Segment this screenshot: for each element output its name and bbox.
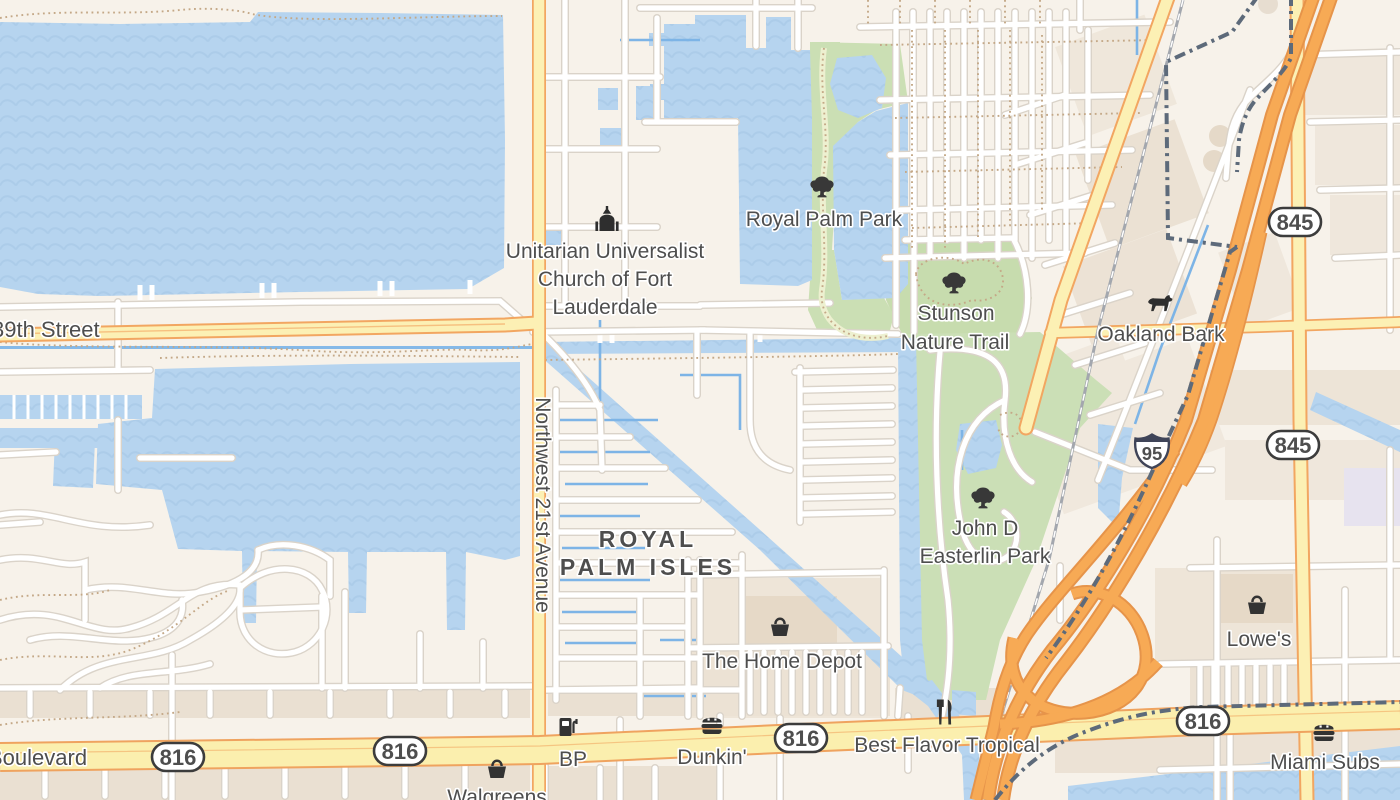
svg-text:816: 816	[783, 726, 820, 751]
svg-text:BP: BP	[559, 748, 587, 771]
svg-text:Nature Trail: Nature Trail	[901, 331, 1010, 354]
svg-text:Church of Fort: Church of Fort	[538, 268, 672, 291]
svg-text:Walgreens: Walgreens	[447, 786, 547, 800]
svg-text:Lauderdale: Lauderdale	[552, 296, 657, 319]
svg-text:816: 816	[382, 739, 419, 764]
svg-text:Northwest 21st Avenue: Northwest 21st Avenue	[531, 397, 554, 613]
svg-text:John D: John D	[952, 517, 1019, 540]
svg-text:PALM ISLES: PALM ISLES	[560, 554, 736, 580]
svg-text:Stunson: Stunson	[917, 302, 994, 325]
svg-text:Easterlin Park: Easterlin Park	[920, 545, 1051, 568]
svg-text:Dunkin': Dunkin'	[677, 746, 746, 769]
svg-text:Royal Palm Park: Royal Palm Park	[746, 208, 903, 231]
svg-text:39th Street: 39th Street	[0, 317, 100, 342]
svg-text:Oakland Bark: Oakland Bark	[1097, 323, 1225, 346]
svg-text:ROYAL: ROYAL	[599, 526, 697, 552]
svg-text:845: 845	[1277, 210, 1314, 235]
svg-text:Boulevard: Boulevard	[0, 745, 87, 770]
svg-text:Best Flavor Tropical: Best Flavor Tropical	[854, 734, 1040, 757]
svg-text:816: 816	[1185, 709, 1222, 734]
svg-text:Lowe's: Lowe's	[1227, 628, 1292, 651]
svg-text:Unitarian Universalist: Unitarian Universalist	[506, 240, 705, 263]
svg-text:Miami Subs: Miami Subs	[1270, 751, 1380, 774]
svg-text:The Home Depot: The Home Depot	[702, 650, 862, 673]
svg-text:95: 95	[1142, 443, 1163, 464]
svg-text:816: 816	[160, 745, 197, 770]
svg-text:845: 845	[1275, 433, 1312, 458]
